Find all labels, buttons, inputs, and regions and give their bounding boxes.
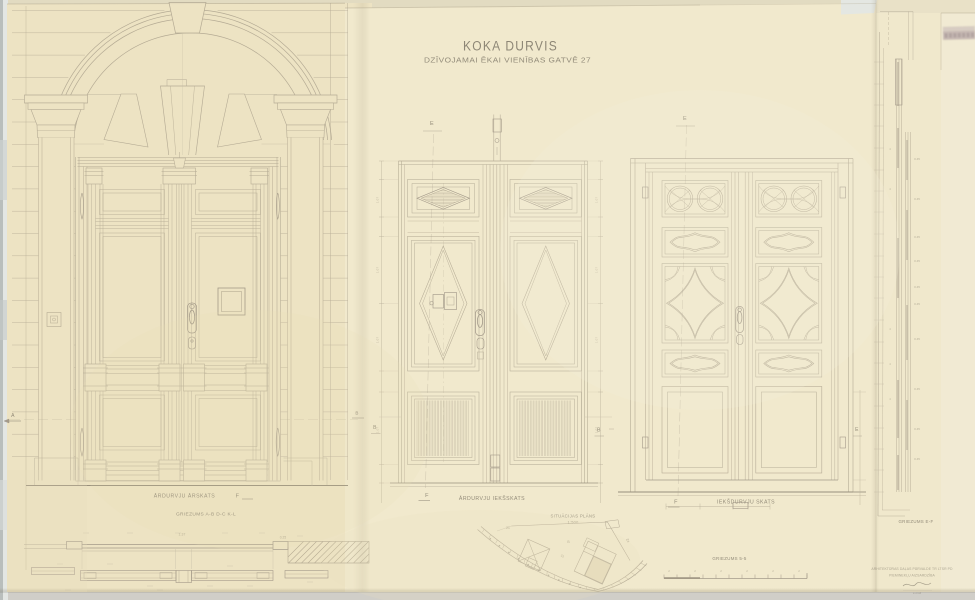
svg-text:E: E [855,427,859,433]
svg-text:0.45: 0.45 [914,302,920,306]
svg-text:F: F [674,500,678,506]
svg-text:B: B [597,428,601,434]
svg-text:ĀRDURVJU IEKŠSKATS: ĀRDURVJU IEKŠSKATS [459,495,525,502]
svg-text:F: F [425,493,429,499]
svg-text:A: A [11,413,15,419]
svg-text:0.45: 0.45 [914,235,920,239]
svg-text:0.45: 0.45 [914,259,920,263]
svg-text:0.45: 0.45 [914,457,920,461]
svg-text:1.07: 1.07 [376,337,380,343]
svg-text:DZĪVOJAMAI ĒKAI VIENĪBAS GATVĒ: DZĪVOJAMAI ĒKAI VIENĪBAS GATVĒ 27 [424,56,591,65]
svg-text:1.07: 1.07 [376,267,380,273]
svg-text:ARHITEKTŪRAS DAĻAS PĀRVALDE TR: ARHITEKTŪRAS DAĻAS PĀRVALDE TR LTSR PD [871,567,953,571]
svg-text:PIEMINEKĻU AIZSARDZĪBA: PIEMINEKĻU AIZSARDZĪBA [889,574,935,578]
svg-text:e-mail: e-mail [913,591,922,595]
svg-text:0.45: 0.45 [914,157,920,161]
svg-text:0.45: 0.45 [914,197,920,201]
svg-text:0.45: 0.45 [914,427,920,431]
svg-text:0.45: 0.45 [914,285,920,289]
svg-text:GRIEZUMS E-F: GRIEZUMS E-F [898,519,933,524]
svg-text:0.45: 0.45 [914,337,920,341]
svg-text:IEKŠDURVJU SKATS: IEKŠDURVJU SKATS [717,499,775,506]
svg-text:1.07: 1.07 [376,197,380,203]
svg-text:E: E [430,121,434,127]
svg-text:GRIEZUMS 5-5: GRIEZUMS 5-5 [712,556,747,561]
svg-text:KOKA DURVIS: KOKA DURVIS [463,39,558,55]
svg-text:0.45: 0.45 [914,387,920,391]
